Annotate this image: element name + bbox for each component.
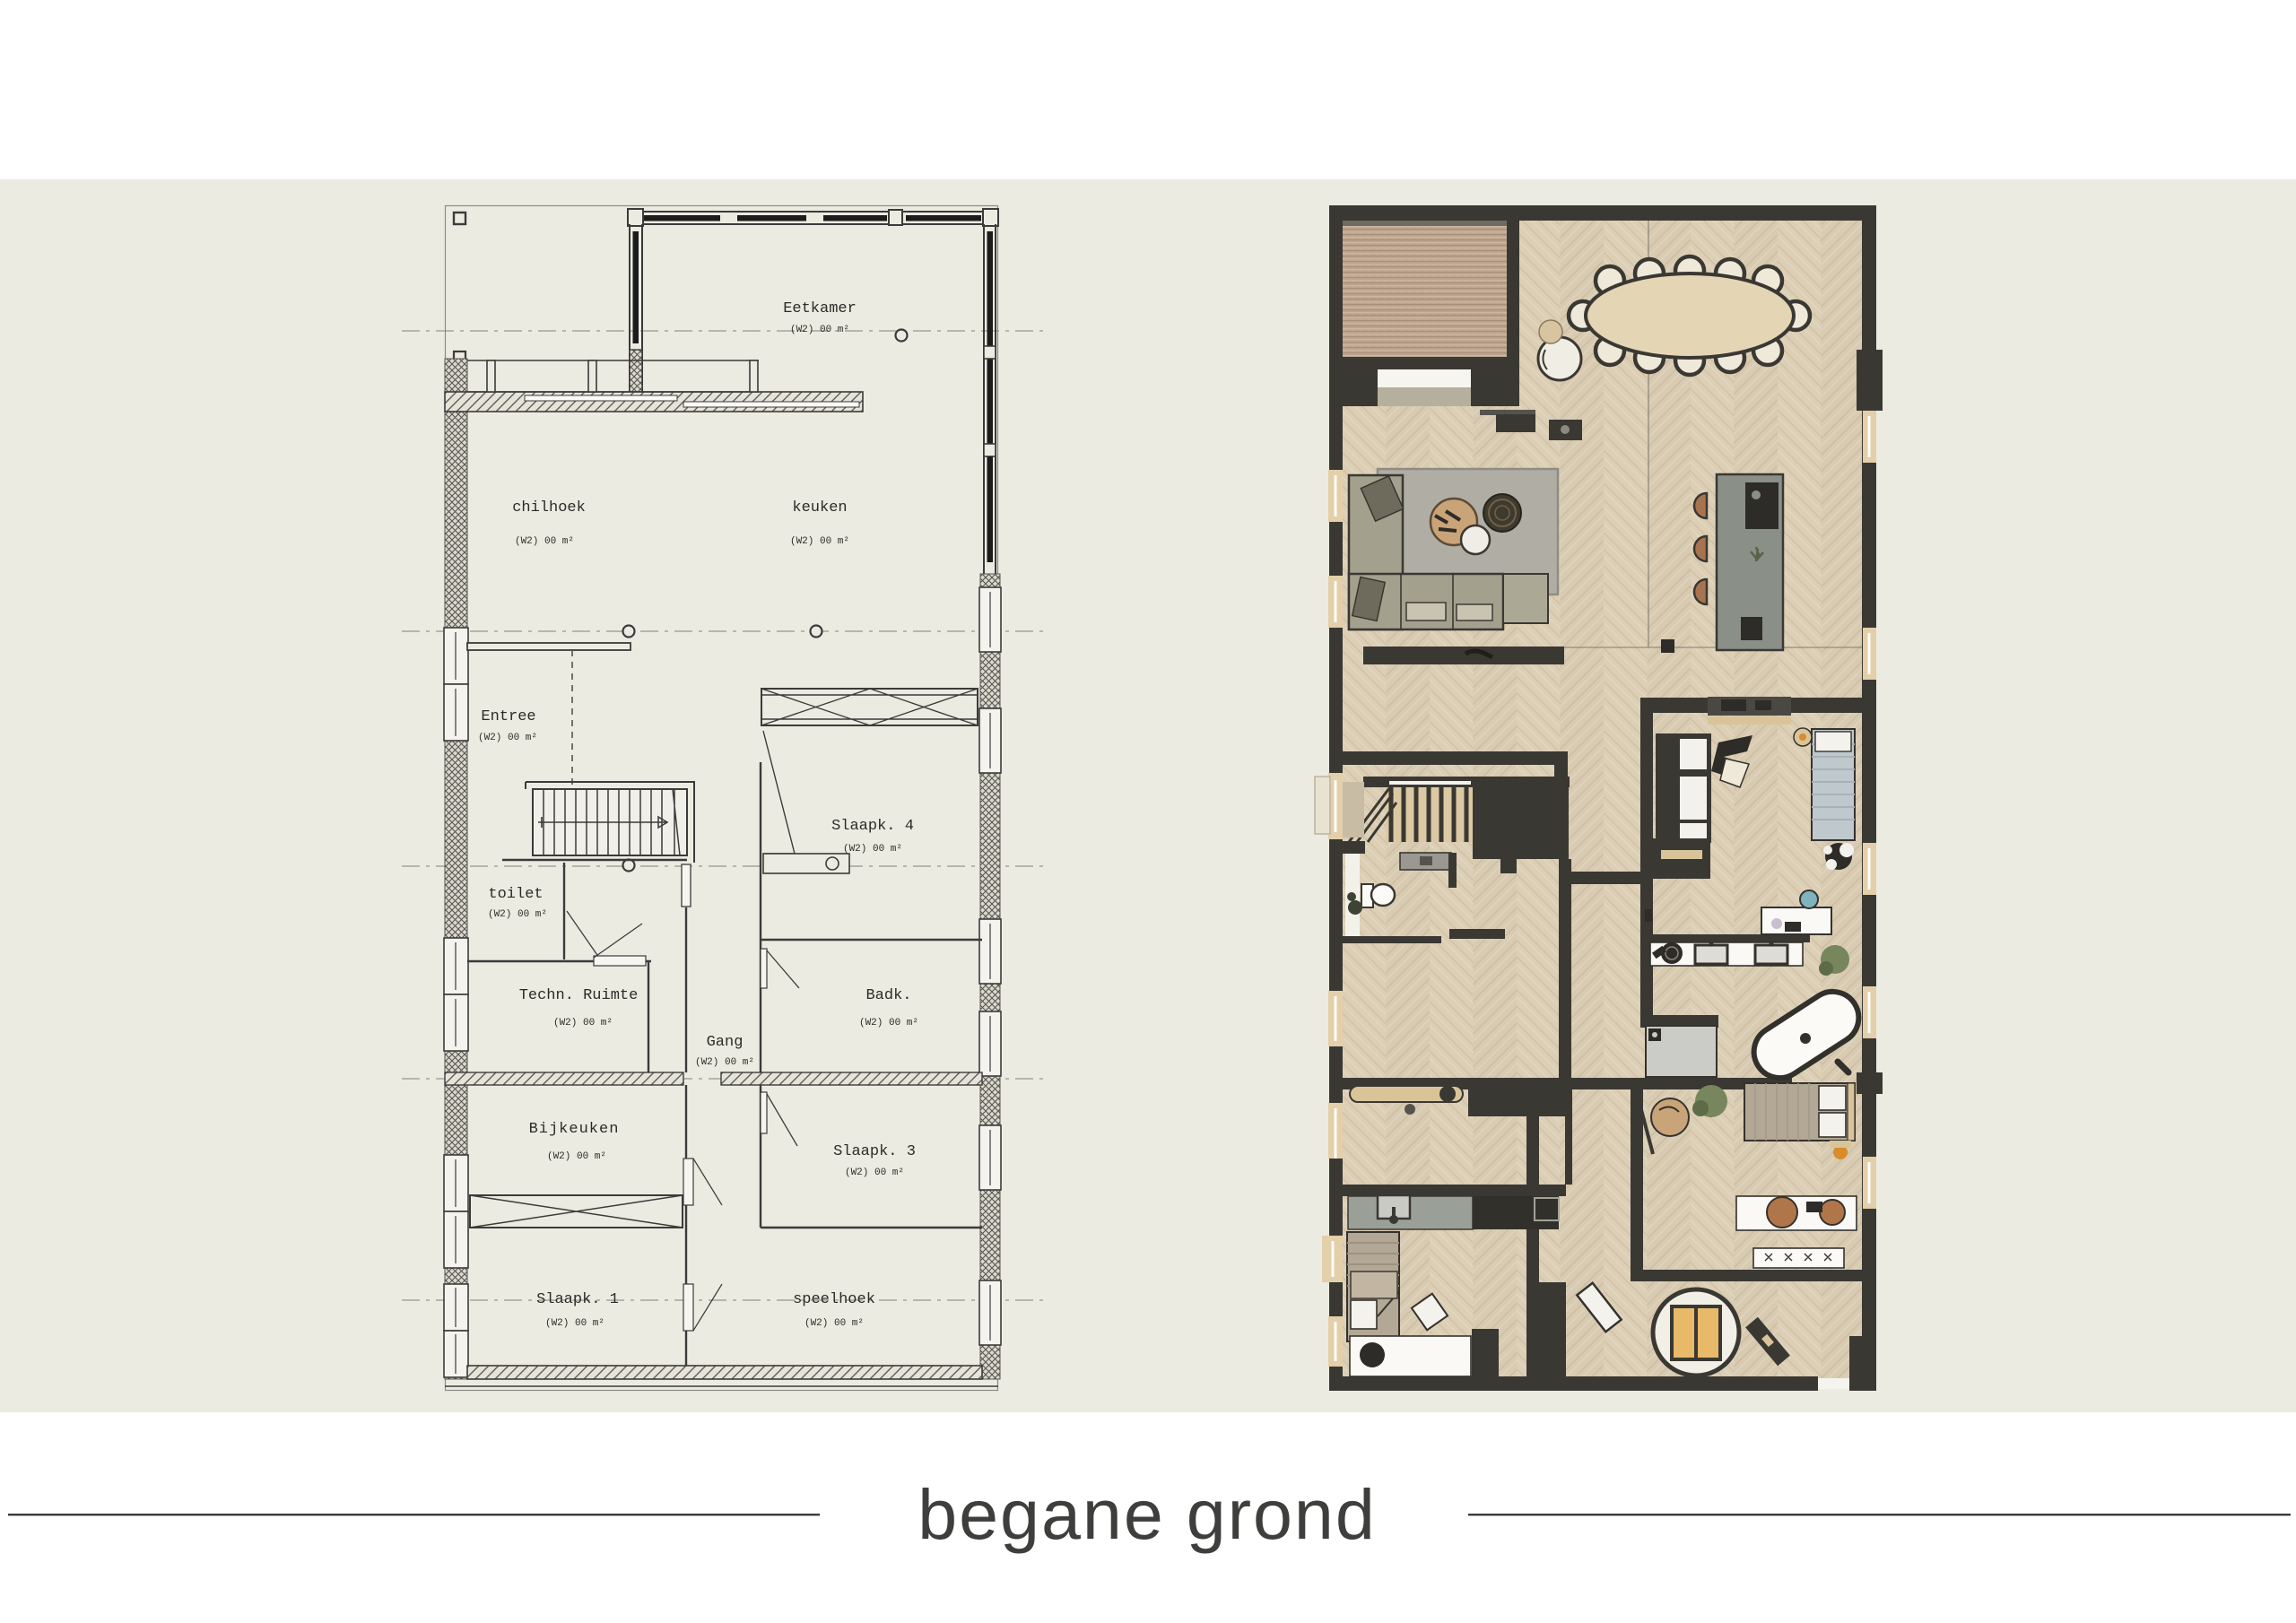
svg-text:chilhoek: chilhoek — [512, 499, 586, 516]
svg-text:keuken: keuken — [792, 499, 847, 516]
svg-text:(W2) 00 m²: (W2) 00 m² — [695, 1057, 754, 1068]
svg-text:Gang: Gang — [707, 1034, 744, 1051]
svg-text:(W2) 00 m²: (W2) 00 m² — [790, 536, 849, 547]
svg-text:(W2) 00 m²: (W2) 00 m² — [547, 1151, 606, 1162]
svg-text:(W2) 00 m²: (W2) 00 m² — [478, 733, 537, 743]
svg-text:Techn. Ruimte: Techn. Ruimte — [519, 987, 639, 1004]
svg-text:Entree: Entree — [481, 708, 535, 725]
svg-text:(W2) 00 m²: (W2) 00 m² — [790, 325, 849, 335]
svg-text:Slaapk. 3: Slaapk. 3 — [833, 1143, 916, 1160]
svg-text:(W2) 00 m²: (W2) 00 m² — [859, 1018, 918, 1028]
svg-text:toilet: toilet — [488, 886, 543, 903]
svg-text:(W2) 00 m²: (W2) 00 m² — [845, 1167, 904, 1178]
svg-text:Slaapk. 1: Slaapk. 1 — [536, 1291, 619, 1308]
svg-text:Bijkeuken: Bijkeuken — [529, 1121, 620, 1138]
svg-text:begane grond: begane grond — [918, 1474, 1377, 1554]
svg-text:(W2) 00 m²: (W2) 00 m² — [553, 1018, 613, 1028]
svg-text:(W2) 00 m²: (W2) 00 m² — [804, 1318, 864, 1329]
svg-text:(W2) 00 m²: (W2) 00 m² — [488, 909, 547, 920]
svg-text:Slaapk. 4: Slaapk. 4 — [831, 818, 914, 835]
svg-text:(W2) 00 m²: (W2) 00 m² — [843, 844, 902, 855]
svg-text:Badk.: Badk. — [865, 987, 911, 1004]
svg-text:(W2) 00 m²: (W2) 00 m² — [515, 536, 574, 547]
svg-text:(W2) 00 m²: (W2) 00 m² — [545, 1318, 604, 1329]
svg-text:speelhoek: speelhoek — [793, 1291, 875, 1308]
svg-text:Eetkamer: Eetkamer — [783, 300, 857, 317]
